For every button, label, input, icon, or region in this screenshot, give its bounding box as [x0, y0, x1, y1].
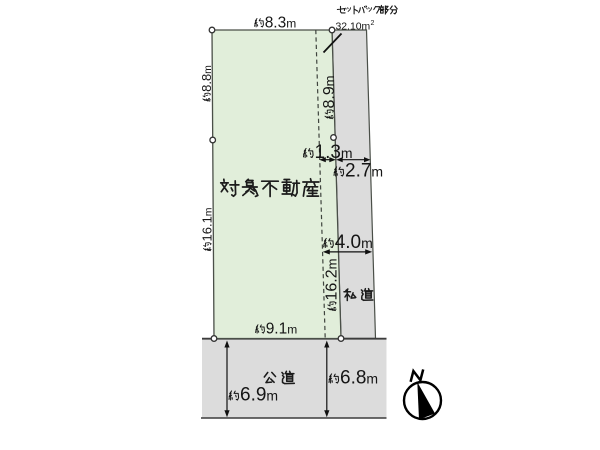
- svg-text:9.1: 9.1: [266, 321, 288, 338]
- svg-text:m: m: [361, 235, 373, 251]
- svg-text:6.8: 6.8: [340, 368, 366, 389]
- svg-text:m: m: [287, 323, 297, 337]
- svg-text:16.2: 16.2: [324, 269, 341, 300]
- svg-text:8.8: 8.8: [199, 74, 214, 92]
- svg-text:6.9: 6.9: [240, 385, 266, 406]
- svg-text:m: m: [322, 75, 337, 86]
- svg-text:32.10m: 32.10m: [336, 21, 371, 32]
- svg-text:m: m: [202, 65, 214, 74]
- svg-text:4.0: 4.0: [335, 232, 361, 253]
- svg-text:16.1: 16.1: [200, 216, 215, 241]
- svg-text:m: m: [371, 164, 383, 180]
- svg-text:8.3: 8.3: [265, 14, 287, 31]
- svg-text:m: m: [203, 207, 215, 216]
- svg-text:m: m: [266, 388, 278, 404]
- svg-text:m: m: [286, 16, 296, 30]
- svg-text:2.7: 2.7: [345, 161, 371, 182]
- svg-text:8.9: 8.9: [321, 86, 338, 108]
- svg-text:2: 2: [371, 20, 375, 27]
- svg-text:m: m: [325, 258, 340, 269]
- svg-text:m: m: [366, 371, 378, 387]
